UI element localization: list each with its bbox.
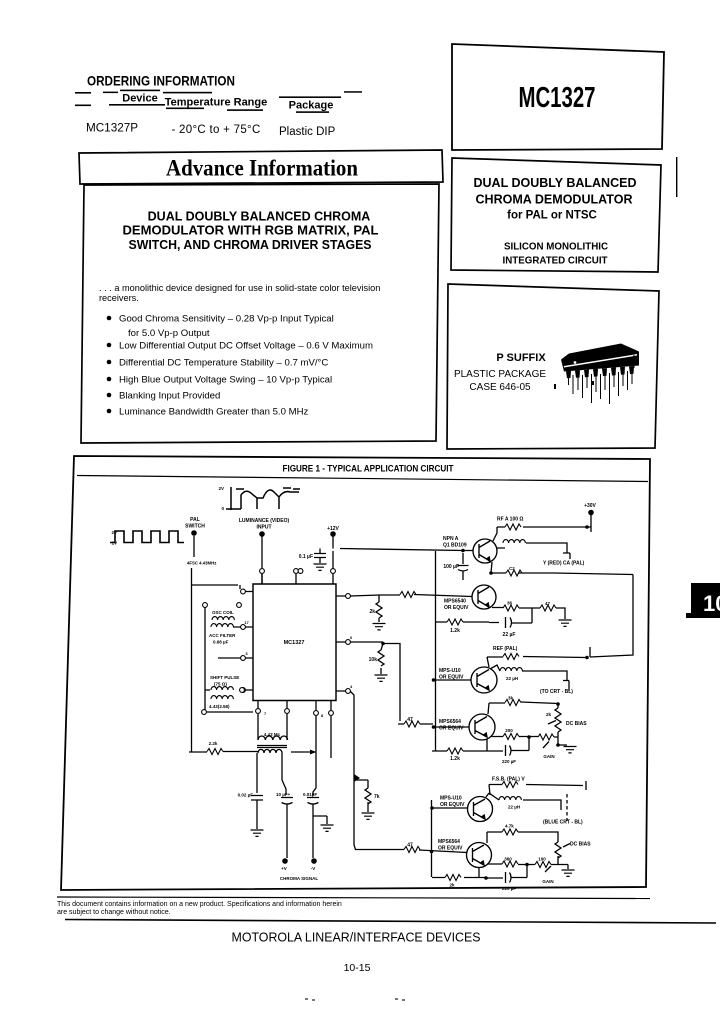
- svg-text:200: 200: [505, 728, 513, 733]
- svg-text:LUMINANCE (VIDEO): LUMINANCE (VIDEO): [239, 518, 290, 524]
- svg-text:1.2k: 1.2k: [450, 628, 460, 634]
- svg-text:100 µF: 100 µF: [443, 564, 459, 570]
- svg-text:+12V: +12V: [327, 526, 339, 532]
- svg-text:2k: 2k: [369, 609, 375, 615]
- svg-text:Blanking Input Provided: Blanking Input Provided: [119, 391, 220, 402]
- svg-text:OR EQUIV: OR EQUIV: [438, 846, 463, 852]
- svg-text:10-15: 10-15: [344, 962, 371, 974]
- svg-text:220 µF: 220 µF: [502, 759, 516, 764]
- svg-text:22 µF: 22 µF: [503, 632, 516, 638]
- svg-text:. . . a monolithic device desi: . . . a monolithic device designed for u…: [99, 283, 380, 293]
- svg-text:Differential DC Temperature St: Differential DC Temperature Stability – …: [119, 358, 328, 369]
- svg-text:for PAL or NTSC: for PAL or NTSC: [507, 210, 597, 222]
- svg-text:INPUT: INPUT: [257, 525, 272, 531]
- svg-text:OSC COIL: OSC COIL: [212, 610, 234, 615]
- svg-text:PAL: PAL: [190, 517, 200, 523]
- svg-text:MPS6564: MPS6564: [439, 719, 461, 725]
- svg-text:P SUFFIX: P SUFFIX: [496, 352, 546, 364]
- svg-text:1V: 1V: [111, 541, 117, 546]
- svg-text:DEMODULATOR WITH RGB MATRIX, P: DEMODULATOR WITH RGB MATRIX, PAL: [123, 224, 379, 238]
- svg-text:2V: 2V: [218, 486, 224, 491]
- svg-text:SILICON MONOLITHIC: SILICON MONOLITHIC: [504, 241, 608, 253]
- svg-text:DC BIAS: DC BIAS: [566, 721, 587, 727]
- svg-text:MPS6540: MPS6540: [444, 599, 466, 605]
- svg-text:Luminance Bandwidth Greater th: Luminance Bandwidth Greater than 5.0 MHz: [119, 407, 309, 418]
- svg-text:REF (PAL): REF (PAL): [493, 646, 518, 652]
- svg-text:DUAL DOUBLY BALANCED: DUAL DOUBLY BALANCED: [474, 176, 637, 190]
- svg-text:2V: 2V: [111, 530, 117, 535]
- svg-text:FIGURE 1 - TYPICAL APPLICATIO: FIGURE 1 - TYPICAL APPLICATION CIRCUIT: [283, 464, 454, 474]
- svg-text:ACC FILTER: ACC FILTER: [209, 633, 236, 638]
- svg-text:are subject to change without: are subject to change without notice.: [57, 909, 171, 916]
- svg-text:4FSC 4.43MHz: 4FSC 4.43MHz: [187, 561, 216, 566]
- svg-text:2.2k: 2.2k: [209, 741, 218, 746]
- svg-text:Plastic DIP: Plastic DIP: [279, 126, 336, 138]
- svg-text:10k: 10k: [369, 657, 378, 663]
- svg-text:10 µF+: 10 µF+: [276, 792, 291, 797]
- svg-text:+V: +V: [281, 866, 287, 871]
- svg-text:47: 47: [545, 601, 551, 606]
- svg-text:4.43(3.58): 4.43(3.58): [209, 704, 230, 709]
- svg-text:+30V: +30V: [584, 503, 596, 509]
- svg-text:Device: Device: [122, 93, 157, 105]
- svg-text:Temperature Range: Temperature Range: [165, 97, 268, 109]
- svg-text:(BLUE CRT - BL): (BLUE CRT - BL): [543, 820, 583, 826]
- svg-text:NPN A: NPN A: [443, 536, 459, 542]
- svg-text:Y (RED) CA (PAL): Y (RED) CA (PAL): [543, 561, 585, 567]
- svg-text:Package: Package: [289, 100, 334, 112]
- svg-text:(75 Ω): (75 Ω): [214, 682, 227, 687]
- svg-text:22 µH: 22 µH: [508, 805, 520, 810]
- svg-text:3k: 3k: [508, 696, 514, 701]
- svg-text:-V: -V: [311, 866, 316, 871]
- svg-text:1.2k: 1.2k: [450, 756, 460, 762]
- svg-text:7k: 7k: [374, 794, 380, 800]
- svg-text:SWITCH, AND CHROMA DRIVER STAG: SWITCH, AND CHROMA DRIVER STAGES: [129, 238, 372, 252]
- svg-text:OR EQUIV: OR EQUIV: [444, 605, 469, 611]
- svg-text:GAIN: GAIN: [543, 754, 554, 759]
- svg-text:SHIFT PULSE: SHIFT PULSE: [210, 675, 239, 680]
- svg-text:4.7k: 4.7k: [505, 824, 514, 829]
- svg-text:0.1 µF: 0.1 µF: [299, 554, 313, 560]
- svg-text:MPS6564: MPS6564: [438, 839, 460, 845]
- svg-text:360: 360: [504, 857, 512, 862]
- svg-text:CHROMA DEMODULATOR: CHROMA DEMODULATOR: [476, 193, 633, 207]
- svg-text:High Blue Output Voltage Swing: High Blue Output Voltage Swing – 10 Vp-p…: [119, 375, 332, 386]
- svg-text:GAIN: GAIN: [542, 879, 553, 884]
- svg-text:100: 100: [538, 857, 546, 862]
- svg-text:This document contains informa: This document contains information on a …: [57, 901, 342, 908]
- svg-text:4.43 Mc: 4.43 Mc: [264, 732, 281, 737]
- svg-text:36: 36: [507, 601, 513, 606]
- svg-text:0.01µF: 0.01µF: [303, 792, 317, 797]
- svg-text:(TO CRT - BL): (TO CRT - BL): [540, 689, 573, 695]
- svg-text:Advance Information: Advance Information: [166, 156, 358, 182]
- svg-text:MPS-U10: MPS-U10: [440, 796, 462, 802]
- svg-text:DC BIAS: DC BIAS: [570, 842, 591, 848]
- svg-text:0.02 µF: 0.02 µF: [238, 793, 254, 798]
- svg-text:OR EQUIV: OR EQUIV: [440, 802, 465, 808]
- svg-text:CHROMA SIGNAL: CHROMA SIGNAL: [280, 876, 319, 881]
- svg-text:CASE 646-05: CASE 646-05: [469, 382, 531, 393]
- svg-text:22 µH: 22 µH: [506, 676, 518, 681]
- svg-text:0.68 µF: 0.68 µF: [213, 640, 229, 645]
- svg-text:47: 47: [407, 717, 413, 723]
- svg-text:MPS-U10: MPS-U10: [439, 668, 461, 674]
- svg-text:MC1327P: MC1327P: [86, 123, 138, 135]
- svg-text:ORDERING INFORMATION: ORDERING INFORMATION: [87, 73, 235, 89]
- svg-text:Low Differential Output DC Off: Low Differential Output DC Offset Voltag…: [119, 341, 373, 352]
- svg-text:2k: 2k: [449, 883, 455, 888]
- svg-text:SWITCH: SWITCH: [185, 524, 205, 530]
- svg-text:Q1 BD109: Q1 BD109: [443, 543, 467, 549]
- svg-text:MC1327: MC1327: [519, 82, 596, 114]
- svg-text:RF A 100 Ω: RF A 100 Ω: [497, 517, 523, 523]
- svg-text:OR EQUIV: OR EQUIV: [439, 675, 464, 681]
- svg-text:220 µF: 220 µF: [502, 886, 516, 891]
- svg-text:OR EQUIV: OR EQUIV: [439, 726, 464, 732]
- svg-text:2k: 2k: [546, 712, 552, 717]
- svg-text:for 5.0 Vp-p Output: for 5.0 Vp-p Output: [128, 328, 210, 339]
- svg-text:47: 47: [407, 843, 413, 849]
- svg-text:MC1327: MC1327: [284, 640, 305, 646]
- svg-text:F.S.B. (PAL) V: F.S.B. (PAL) V: [492, 777, 525, 783]
- svg-text:DUAL DOUBLY BALANCED CHROMA: DUAL DOUBLY BALANCED CHROMA: [148, 210, 371, 224]
- svg-text:receivers.: receivers.: [99, 293, 139, 303]
- svg-text:17: 17: [244, 620, 249, 625]
- svg-text:MOTOROLA LINEAR/INTERFACE DEVI: MOTOROLA LINEAR/INTERFACE DEVICES: [232, 931, 481, 945]
- svg-text:Good Chroma Sensitivity – 0.28: Good Chroma Sensitivity – 0.28 Vp-p Inpu…: [119, 314, 334, 325]
- svg-text:PLASTIC PACKAGE: PLASTIC PACKAGE: [454, 369, 546, 380]
- svg-text:10: 10: [703, 591, 720, 616]
- svg-text:C2: C2: [509, 566, 515, 571]
- svg-text:- 20°C to + 75°C: - 20°C to + 75°C: [171, 124, 260, 136]
- svg-text:INTEGRATED CIRCUIT: INTEGRATED CIRCUIT: [503, 254, 609, 266]
